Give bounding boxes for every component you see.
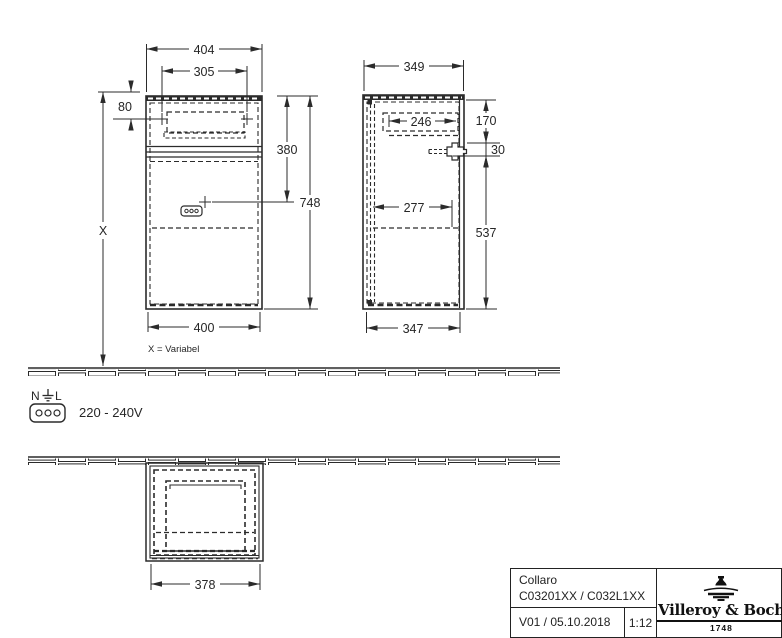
handle-centre-marks	[156, 113, 253, 125]
dim-label-80: 80	[118, 100, 132, 114]
bottom-view	[146, 463, 263, 561]
dim-label-246: 246	[411, 115, 432, 129]
front-view-dimensions	[94, 42, 325, 366]
dim-label-170: 170	[476, 114, 497, 128]
brand-year: 1748	[710, 623, 733, 633]
internal-socket-symbol	[181, 196, 211, 216]
technical-drawing-page: 404 305 80 380 748 400 X X = Variabel	[0, 0, 782, 638]
drawer-plan-hidden	[166, 481, 245, 551]
side-view-dimensions	[364, 59, 502, 335]
dim-label-380: 380	[277, 143, 298, 157]
side-view-dim-labels: 349 246 170 30 537 277 347	[403, 60, 505, 336]
drawing-canvas: 404 305 80 380 748 400 X X = Variabel	[0, 0, 782, 638]
label-line: L	[55, 389, 62, 403]
dim-label-30: 30	[491, 143, 505, 157]
dim-label-277: 277	[404, 201, 425, 215]
brand-crest-icon	[698, 575, 744, 601]
dim-label-349: 349	[404, 60, 425, 74]
drawer-cutout-hidden	[167, 112, 244, 133]
dim-label-404: 404	[194, 43, 215, 57]
title-block: Collaro C03201XX / C032L1XX V01 / 05.10.…	[510, 568, 782, 638]
dim-label-378: 378	[195, 578, 216, 592]
wall-hatch-upper	[28, 368, 560, 376]
version-date: V01 / 05.10.2018	[511, 608, 624, 637]
drawing-scale: 1:12	[624, 608, 656, 637]
dim-label-x: X	[99, 224, 108, 238]
dim-label-305: 305	[194, 65, 215, 79]
brand-wordmark: Villeroy & Boch	[657, 601, 782, 622]
product-name: Collaro	[519, 573, 650, 589]
brand-logo: Villeroy & Boch 1748	[657, 569, 782, 637]
dim-label-748: 748	[300, 196, 321, 210]
dim-label-347: 347	[403, 322, 424, 336]
dim-label-400: 400	[194, 321, 215, 335]
title-block-meta-row: V01 / 05.10.2018 1:12	[511, 608, 657, 637]
title-block-product-cell: Collaro C03201XX / C032L1XX	[511, 569, 657, 608]
wall-hatch-lower	[28, 457, 560, 465]
dim-label-537: 537	[476, 226, 497, 240]
article-numbers: C03201XX / C032L1XX	[519, 589, 650, 605]
variable-note: X = Variabel	[148, 344, 199, 355]
label-voltage: 220 - 240V	[79, 405, 143, 420]
earth-ground-icon	[43, 389, 54, 401]
label-neutral: N	[31, 389, 40, 403]
socket-icon	[30, 404, 65, 422]
